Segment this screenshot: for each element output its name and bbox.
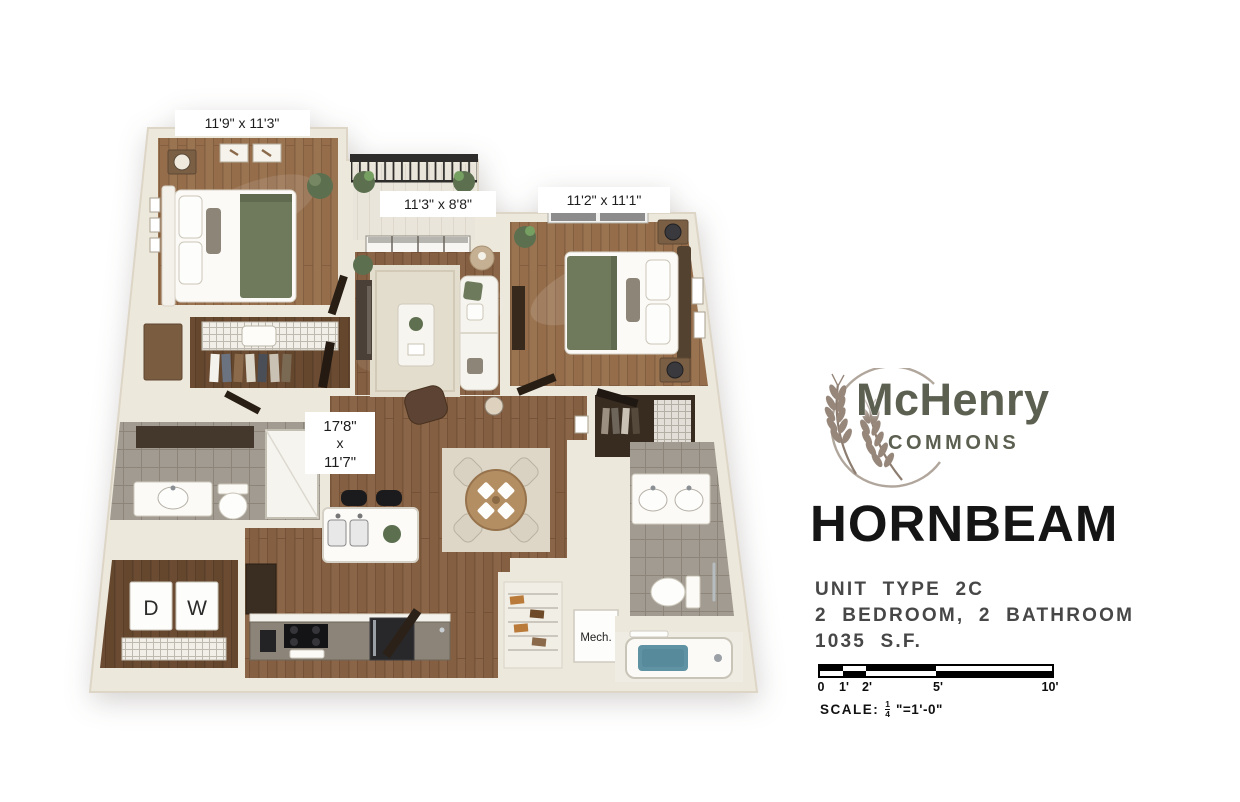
vanity-ledge [136,426,254,448]
bar-stool [341,490,367,506]
unit-layout: 2 BEDROOM, 2 BATHROOM [815,603,1134,629]
scale-bar-graphic [818,664,1054,678]
washer-label: W [187,597,207,620]
lamp [667,362,683,378]
basket [242,326,276,346]
railing [350,154,478,162]
bed [565,246,691,360]
scale-ratio: "=1'-0" [896,702,943,717]
dresser [512,286,525,350]
scale-label: SCALE: [820,702,879,717]
walk-in-closet [190,317,350,388]
unit-area: 1035 S.F. [815,629,1134,655]
sink-vanity [134,482,212,516]
island [323,508,418,562]
scale-tick: 0 [818,680,825,694]
gallery-frame [150,198,160,212]
bed [162,186,296,306]
toilet [651,576,700,608]
art-frame [575,416,588,433]
dresser [144,324,182,380]
floor-plan: D W [70,90,780,710]
unit-info: UNIT TYPE 2C 2 BEDROOM, 2 BATHROOM 1035 … [815,577,1134,655]
scale-tick: 1' [839,680,849,694]
gallery-frame [150,218,160,232]
lamp [665,224,681,240]
bedroom-1-dimensions: 11'9" x 11'3" [205,115,280,131]
laundry: D W [100,560,238,668]
floor-lamp [485,397,503,415]
mech-label: Mech. [580,632,611,644]
floor-plan-sheet: D W [0,0,1240,802]
cabinet [246,564,276,614]
brand-logo: McHenry COMMONS [798,368,1148,494]
scale-note: SCALE: 1 4 "=1'-0" [820,700,943,719]
scale-bar-ticks: 0 1' 2' 5' 10' [818,680,1054,696]
brand-subname: COMMONS [888,432,1019,455]
faucet [714,654,722,662]
art-frame [694,312,705,338]
bedroom-1 [150,138,338,306]
entry-closet [504,582,562,668]
scale-tick: 10' [1042,680,1059,694]
plant [353,255,373,275]
coffee-table [398,304,434,366]
unit-name: HORNBEAM [810,494,1118,553]
dining-set [442,448,550,552]
living-room-length: 11'7" [324,454,356,471]
balcony-dimensions: 11'3" x 8'8" [404,196,472,212]
scale-fraction: 1 4 [885,700,890,719]
unit-type: UNIT TYPE 2C [815,577,1134,603]
bathtub [626,631,732,678]
counter [250,614,450,660]
sliding-door [366,236,470,254]
scale-bar: 0 1' 2' 5' 10' [818,664,1054,704]
gallery-frame [150,238,160,252]
sink [328,520,346,546]
towel [630,631,668,637]
dryer-label: D [143,597,158,620]
wire-shelf [122,638,226,660]
scale-tick: 5' [933,680,943,694]
stove [284,624,328,648]
bedroom-2 [510,211,708,386]
living-room-width: 17'8" [323,418,356,435]
living-room-separator: x [337,435,344,451]
sink [350,520,368,546]
sofa [460,276,498,390]
double-vanity [632,474,710,524]
bedroom-2-dimensions: 11'2" x 11'1" [567,192,642,208]
scale-tick: 2' [862,680,872,694]
toilet [218,484,248,519]
coffee-maker [260,630,276,652]
art-frame [692,278,703,304]
brand-name: McHenry [856,374,1050,426]
bar-stool [376,490,402,506]
towel [290,650,324,658]
plant [383,525,401,543]
lamp [174,154,190,170]
